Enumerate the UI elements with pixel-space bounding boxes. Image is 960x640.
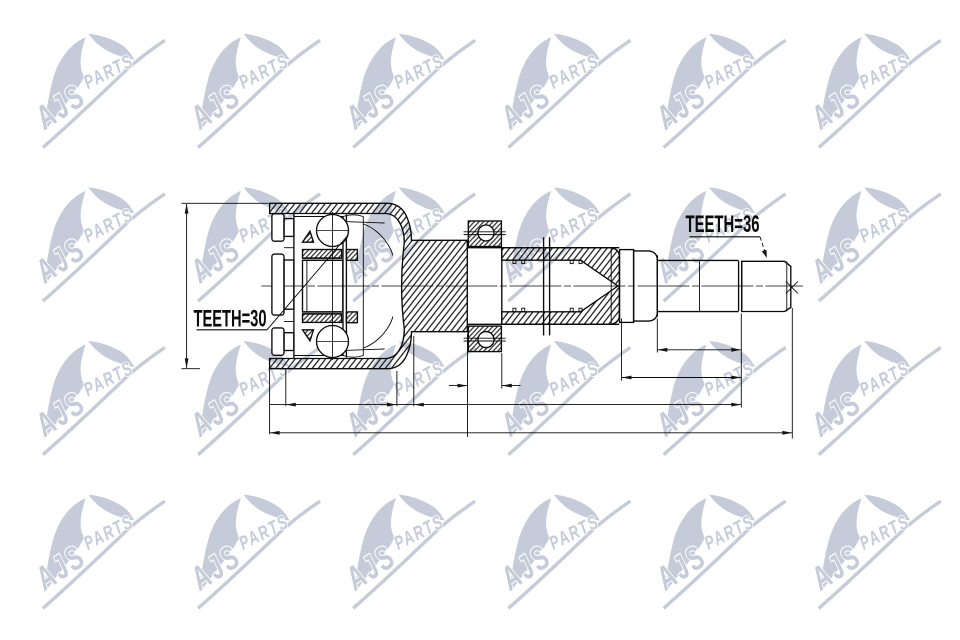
- svg-text:TEETH=36: TEETH=36: [686, 211, 760, 238]
- svg-text:TEETH=30: TEETH=30: [194, 306, 267, 333]
